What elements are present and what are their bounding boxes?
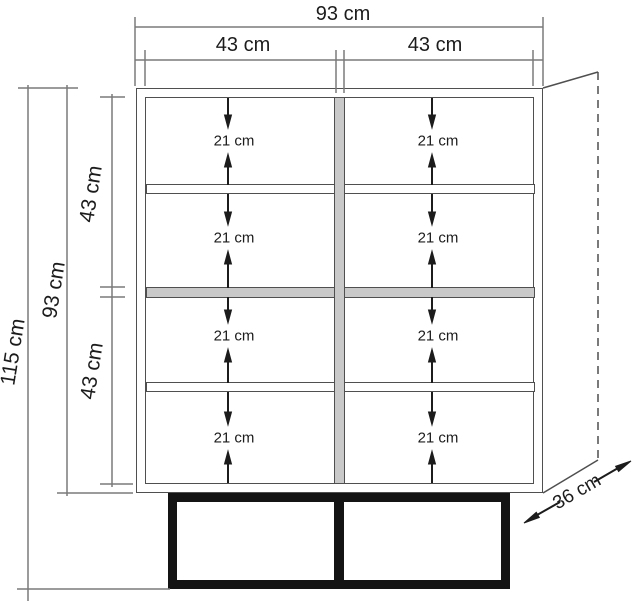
dim-label-upper-half-height: 43 cm [76, 164, 106, 224]
center-divider [334, 97, 345, 484]
dim-label-total-height: 115 cm [0, 317, 29, 387]
perspective-edges [543, 72, 598, 493]
dim-label-right-width: 43 cm [408, 35, 462, 55]
dim-label-depth: 36 cm [550, 471, 604, 513]
furniture-dimension-diagram: 93 cm 43 cm 43 cm 115 cm 93 cm 43 cm 43 … [0, 0, 632, 603]
top-dimension-lines [135, 17, 543, 93]
dim-label-compartment: 21 cm [214, 231, 255, 246]
dim-label-total-width: 93 cm [316, 4, 370, 24]
dim-label-compartment: 21 cm [214, 329, 255, 344]
dim-label-left-width: 43 cm [216, 35, 270, 55]
dim-label-compartment: 21 cm [418, 231, 459, 246]
dim-label-compartment: 21 cm [214, 134, 255, 149]
dim-label-compartment: 21 cm [214, 431, 255, 446]
dim-label-body-height: 93 cm [39, 260, 69, 320]
base-divider [334, 493, 344, 589]
dim-label-compartment: 21 cm [418, 431, 459, 446]
dim-label-lower-half-height: 43 cm [77, 341, 107, 401]
dim-label-compartment: 21 cm [418, 134, 459, 149]
dim-label-compartment: 21 cm [418, 329, 459, 344]
